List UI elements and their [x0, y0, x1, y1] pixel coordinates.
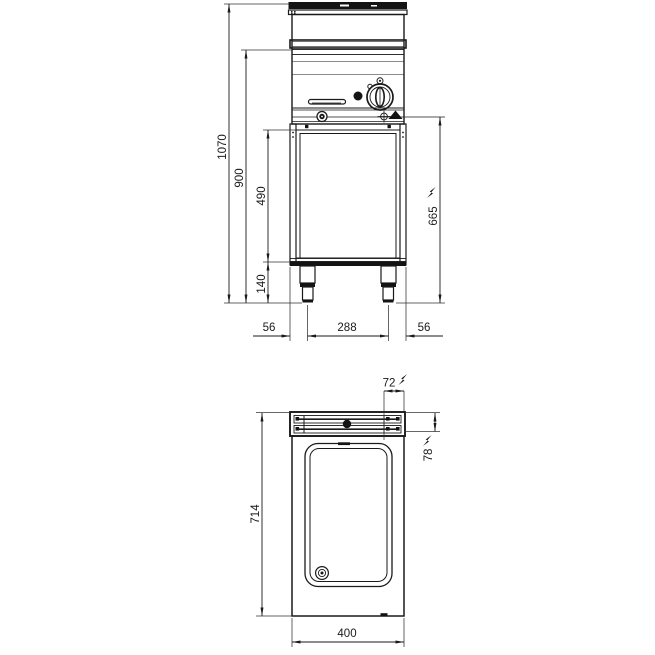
rail-bolt	[305, 125, 308, 128]
dim-label-width: 400	[337, 628, 356, 640]
front-view	[289, 2, 446, 303]
dim-label-compartment-height: 490	[256, 186, 268, 205]
leg-right	[381, 266, 396, 303]
technical-drawing-page: 1070 900 490 140 665 56 288 56	[0, 0, 655, 655]
dim-label-electric-y: 78	[423, 449, 435, 462]
compartment-opening	[296, 130, 400, 258]
stand-post-right	[400, 124, 406, 265]
dim-label-leg-spacing: 288	[337, 322, 356, 334]
electric-connection-icon	[378, 111, 403, 123]
trim-bolt	[294, 12, 296, 14]
screw-icon	[317, 112, 327, 122]
lightning-bolt-icon	[399, 374, 408, 385]
stand-bottom-trim	[290, 259, 406, 262]
worktop-gap	[371, 5, 377, 7]
griddle-plate-inner	[310, 449, 387, 582]
dim-label-electric-height: 665	[428, 206, 440, 225]
drain-icon	[316, 567, 329, 580]
post-bolt	[402, 136, 404, 138]
dim-label-electric-x: 72	[383, 378, 396, 390]
post-bolt	[292, 132, 294, 134]
dim-label-right-offset: 56	[418, 322, 431, 334]
panel-trim-upper	[290, 40, 406, 48]
panel-trim-upper-inner	[292, 42, 404, 47]
dim-label-left-offset: 56	[263, 322, 276, 334]
plan-back-rail	[290, 412, 405, 436]
trim-bolt	[291, 11, 293, 13]
rail-center-dot	[343, 420, 351, 428]
worktop-gap	[340, 5, 349, 7]
handle	[309, 100, 346, 105]
indicator-light-icon	[354, 92, 363, 101]
appliance-dimension-drawing: 1070 900 490 140 665 56 288 56	[0, 0, 655, 655]
post-bolt	[402, 132, 404, 134]
dim-label-depth: 714	[250, 504, 262, 524]
lightning-bolt-icon	[427, 187, 436, 198]
dim-label-worktop-height: 900	[234, 168, 246, 187]
stand-top-rail	[296, 124, 400, 130]
control-knob-icon	[367, 78, 393, 110]
plan-view-dimensions: 714 400 72 78	[250, 374, 440, 647]
dim-label-leg-height: 140	[256, 274, 268, 293]
plate-notch	[338, 442, 350, 445]
stand-bottom-band	[290, 262, 406, 267]
leg-left	[300, 266, 315, 303]
panel-trim-lower	[292, 50, 404, 55]
rail-bolt	[388, 125, 391, 128]
lightning-bolt-icon	[423, 435, 432, 446]
plan-view	[290, 412, 405, 616]
plan-front-mark	[381, 613, 388, 616]
griddle-plate-outer	[305, 444, 392, 587]
compartment-panel	[300, 134, 396, 259]
trim-bolt	[294, 11, 296, 13]
stand-post-left	[290, 124, 296, 265]
trim-bolt	[291, 12, 293, 14]
post-bolt	[292, 136, 294, 138]
dim-label-total-height: 1070	[217, 134, 229, 160]
